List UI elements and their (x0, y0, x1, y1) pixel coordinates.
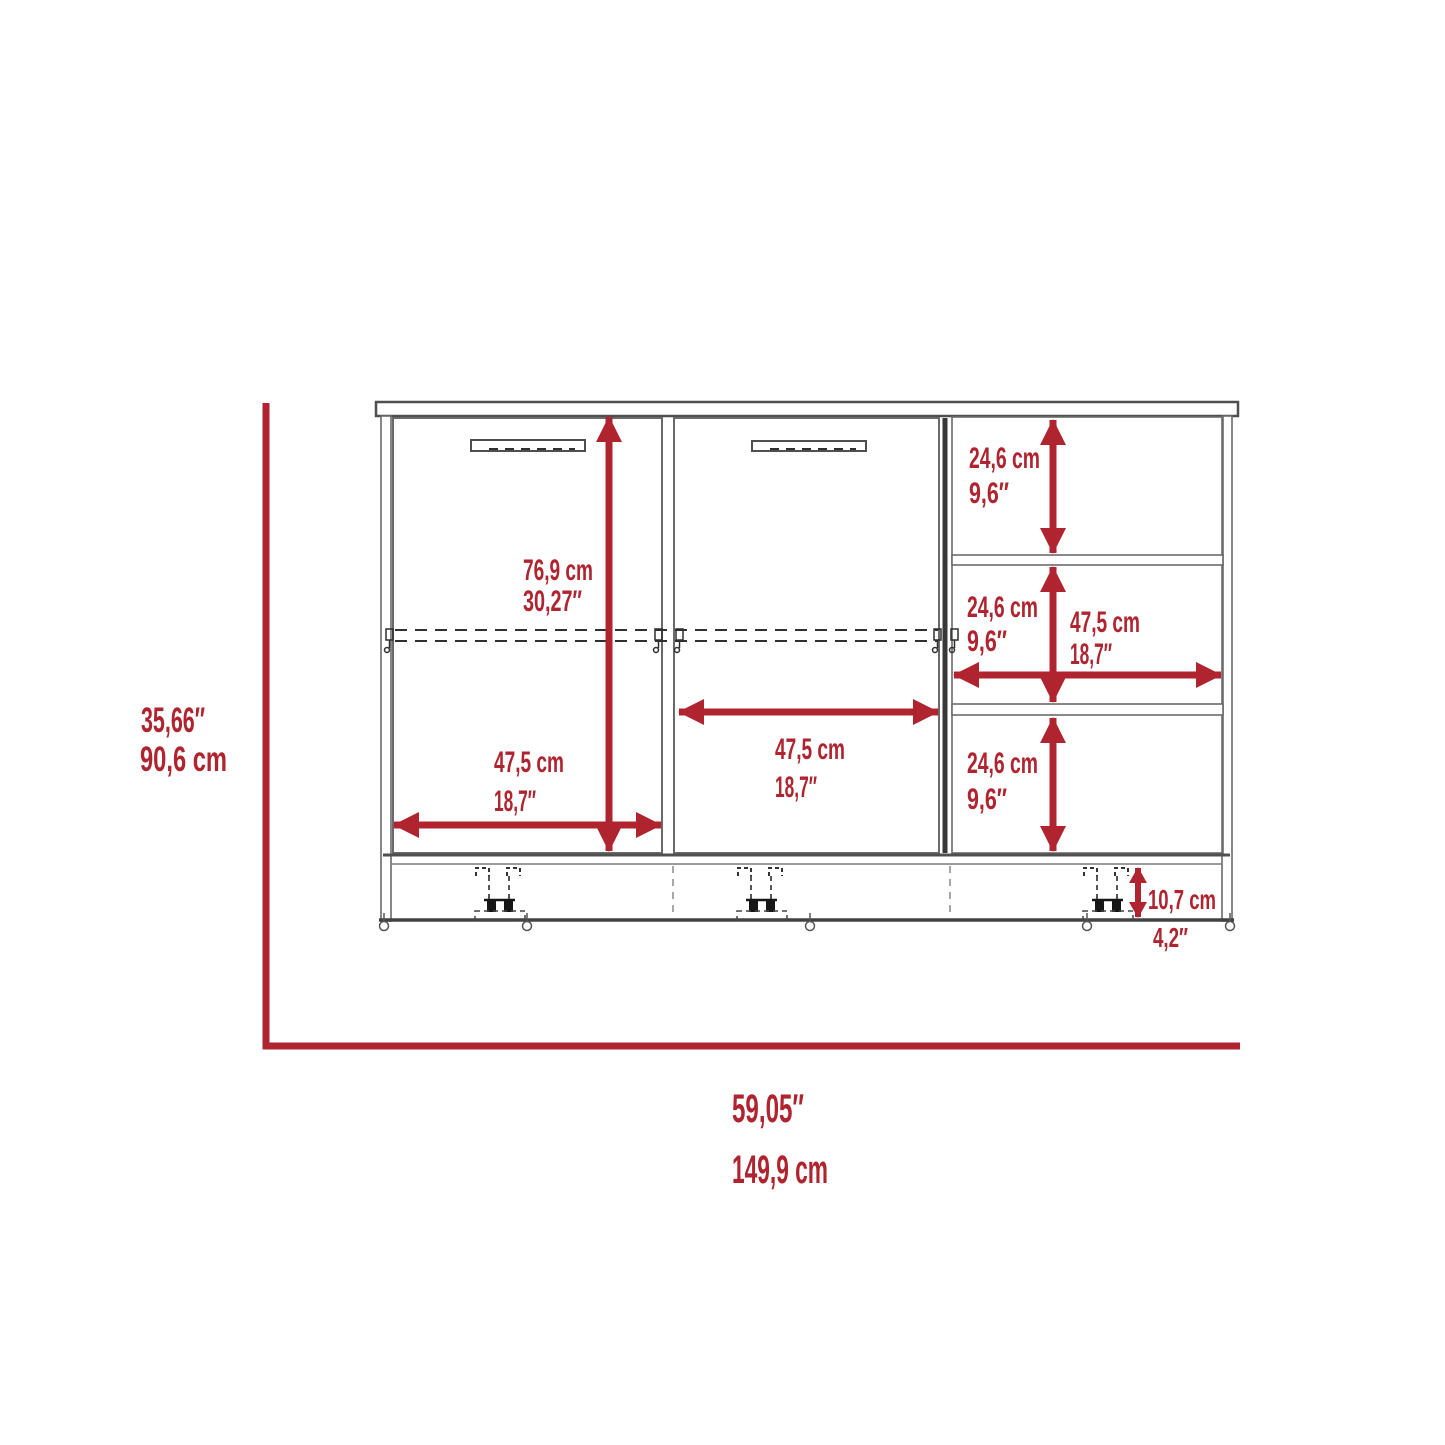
label-shelf-top-height-in: 9,6″ (969, 477, 1009, 510)
leg-assembly (1083, 868, 1133, 920)
label-middle-door-width-in: 18,7″ (775, 771, 817, 804)
label-overall-width-cm: 149,9 cm (732, 1148, 828, 1192)
label-overall-height-cm: 90,6 cm (140, 740, 227, 779)
dimension-diagram-canvas: 35,66″ 90,6 cm 59,05″ 149,9 cm 76,9 cm 3… (0, 0, 1445, 1445)
overall-extent-guide (266, 403, 1240, 1046)
left-door-handle (471, 440, 585, 451)
shelf-clip-icon (654, 629, 663, 653)
dimension-annotations: 35,66″ 90,6 cm 59,05″ 149,9 cm 76,9 cm 3… (140, 403, 1240, 1192)
shelf-clip-icon (675, 629, 684, 653)
shelf-clip-icon (950, 629, 959, 653)
leg-assembly (475, 868, 525, 920)
cabinet-top-panel (376, 402, 1238, 416)
label-left-door-width-cm: 47,5 cm (494, 746, 564, 779)
label-overall-height-in: 35,66″ (141, 701, 205, 740)
shelf-clip-icons (385, 629, 959, 653)
label-shelf-width-cm: 47,5 cm (1070, 606, 1140, 639)
label-left-door-width-in: 18,7″ (494, 785, 536, 818)
label-shelf-middle-height-cm: 24,6 cm (967, 591, 1038, 624)
label-shelf-bottom-height-cm: 24,6 cm (967, 747, 1038, 780)
label-shelf-width-in: 18,7″ (1070, 638, 1112, 671)
label-shelf-bottom-height-in: 9,6″ (967, 783, 1007, 816)
middle-door-handle (752, 441, 866, 451)
cabinet-left-side (381, 416, 391, 921)
cabinet-dimension-diagram: 35,66″ 90,6 cm 59,05″ 149,9 cm 76,9 cm 3… (0, 0, 1445, 1445)
leg-assemblies (475, 868, 1133, 920)
label-base-height-in: 4,2″ (1153, 922, 1188, 953)
shelf-board-bottom (952, 704, 1223, 715)
label-shelf-top-height-cm: 24,6 cm (969, 442, 1040, 475)
label-base-height-cm: 10,7 cm (1148, 884, 1216, 915)
label-overall-width-in: 59,05″ (732, 1087, 804, 1131)
label-door-height-in: 30,27″ (523, 585, 582, 618)
label-shelf-middle-height-in: 9,6″ (967, 625, 1007, 658)
label-middle-door-width-cm: 47,5 cm (775, 733, 845, 766)
label-door-height-cm: 76,9 cm (523, 554, 593, 587)
leg-assembly (737, 868, 787, 920)
shelf-board-top (952, 555, 1223, 565)
